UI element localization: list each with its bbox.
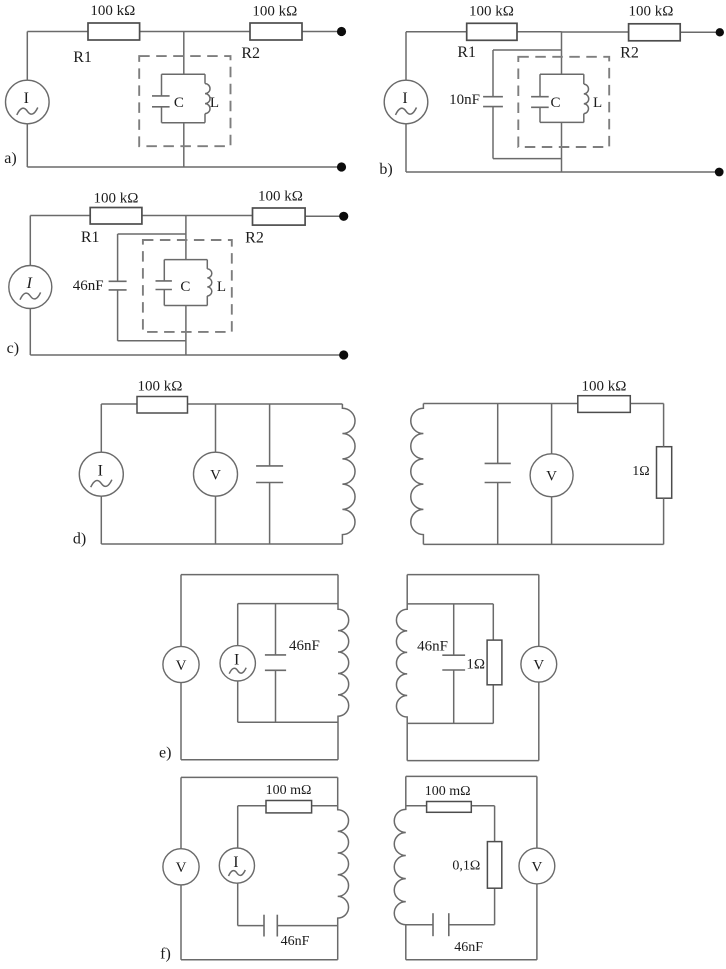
svg-text:I: I: [24, 90, 29, 107]
svg-text:V: V: [176, 860, 187, 876]
svg-text:46nF: 46nF: [73, 278, 104, 294]
svg-text:100 kΩ: 100 kΩ: [138, 378, 183, 394]
svg-text:0,1Ω: 0,1Ω: [452, 859, 480, 874]
svg-text:c): c): [7, 340, 19, 357]
svg-text:L: L: [593, 95, 602, 111]
svg-text:V: V: [546, 469, 557, 485]
svg-text:C: C: [550, 95, 560, 111]
svg-text:L: L: [217, 279, 226, 295]
svg-text:f): f): [160, 946, 171, 963]
svg-text:100 kΩ: 100 kΩ: [252, 3, 297, 19]
svg-text:R2: R2: [241, 45, 260, 62]
svg-text:46nF: 46nF: [417, 638, 448, 654]
svg-text:I: I: [234, 652, 239, 669]
svg-text:R1: R1: [73, 49, 92, 66]
svg-text:46nF: 46nF: [454, 940, 483, 955]
svg-text:100 kΩ: 100 kΩ: [90, 3, 135, 19]
svg-text:46nF: 46nF: [289, 638, 320, 654]
svg-text:R2: R2: [620, 44, 639, 61]
svg-text:100 kΩ: 100 kΩ: [469, 3, 514, 19]
svg-text:100 kΩ: 100 kΩ: [258, 189, 303, 205]
svg-text:100 kΩ: 100 kΩ: [582, 379, 627, 395]
svg-text:a): a): [4, 150, 16, 167]
svg-text:L: L: [210, 95, 219, 111]
svg-text:C: C: [180, 279, 190, 295]
svg-text:d): d): [73, 531, 86, 548]
svg-text:I: I: [98, 462, 103, 479]
svg-text:100 mΩ: 100 mΩ: [266, 783, 312, 798]
svg-text:1Ω: 1Ω: [632, 464, 649, 479]
svg-text:V: V: [210, 468, 221, 484]
svg-text:10nF: 10nF: [449, 92, 480, 108]
svg-text:V: V: [533, 658, 544, 674]
svg-text:R2: R2: [245, 230, 264, 247]
svg-text:I: I: [26, 275, 33, 292]
svg-text:V: V: [531, 859, 542, 875]
svg-text:I: I: [402, 90, 407, 107]
svg-text:I: I: [233, 854, 238, 871]
svg-text:V: V: [176, 658, 187, 674]
svg-text:100 kΩ: 100 kΩ: [94, 190, 139, 206]
svg-text:R1: R1: [81, 229, 100, 246]
svg-text:R1: R1: [457, 44, 476, 61]
svg-text:46nF: 46nF: [281, 934, 310, 949]
svg-text:1Ω: 1Ω: [466, 656, 485, 672]
svg-text:100 mΩ: 100 mΩ: [425, 784, 471, 799]
svg-text:b): b): [379, 161, 392, 178]
svg-text:C: C: [174, 95, 184, 111]
svg-text:e): e): [159, 744, 171, 761]
svg-text:100 kΩ: 100 kΩ: [629, 4, 674, 20]
